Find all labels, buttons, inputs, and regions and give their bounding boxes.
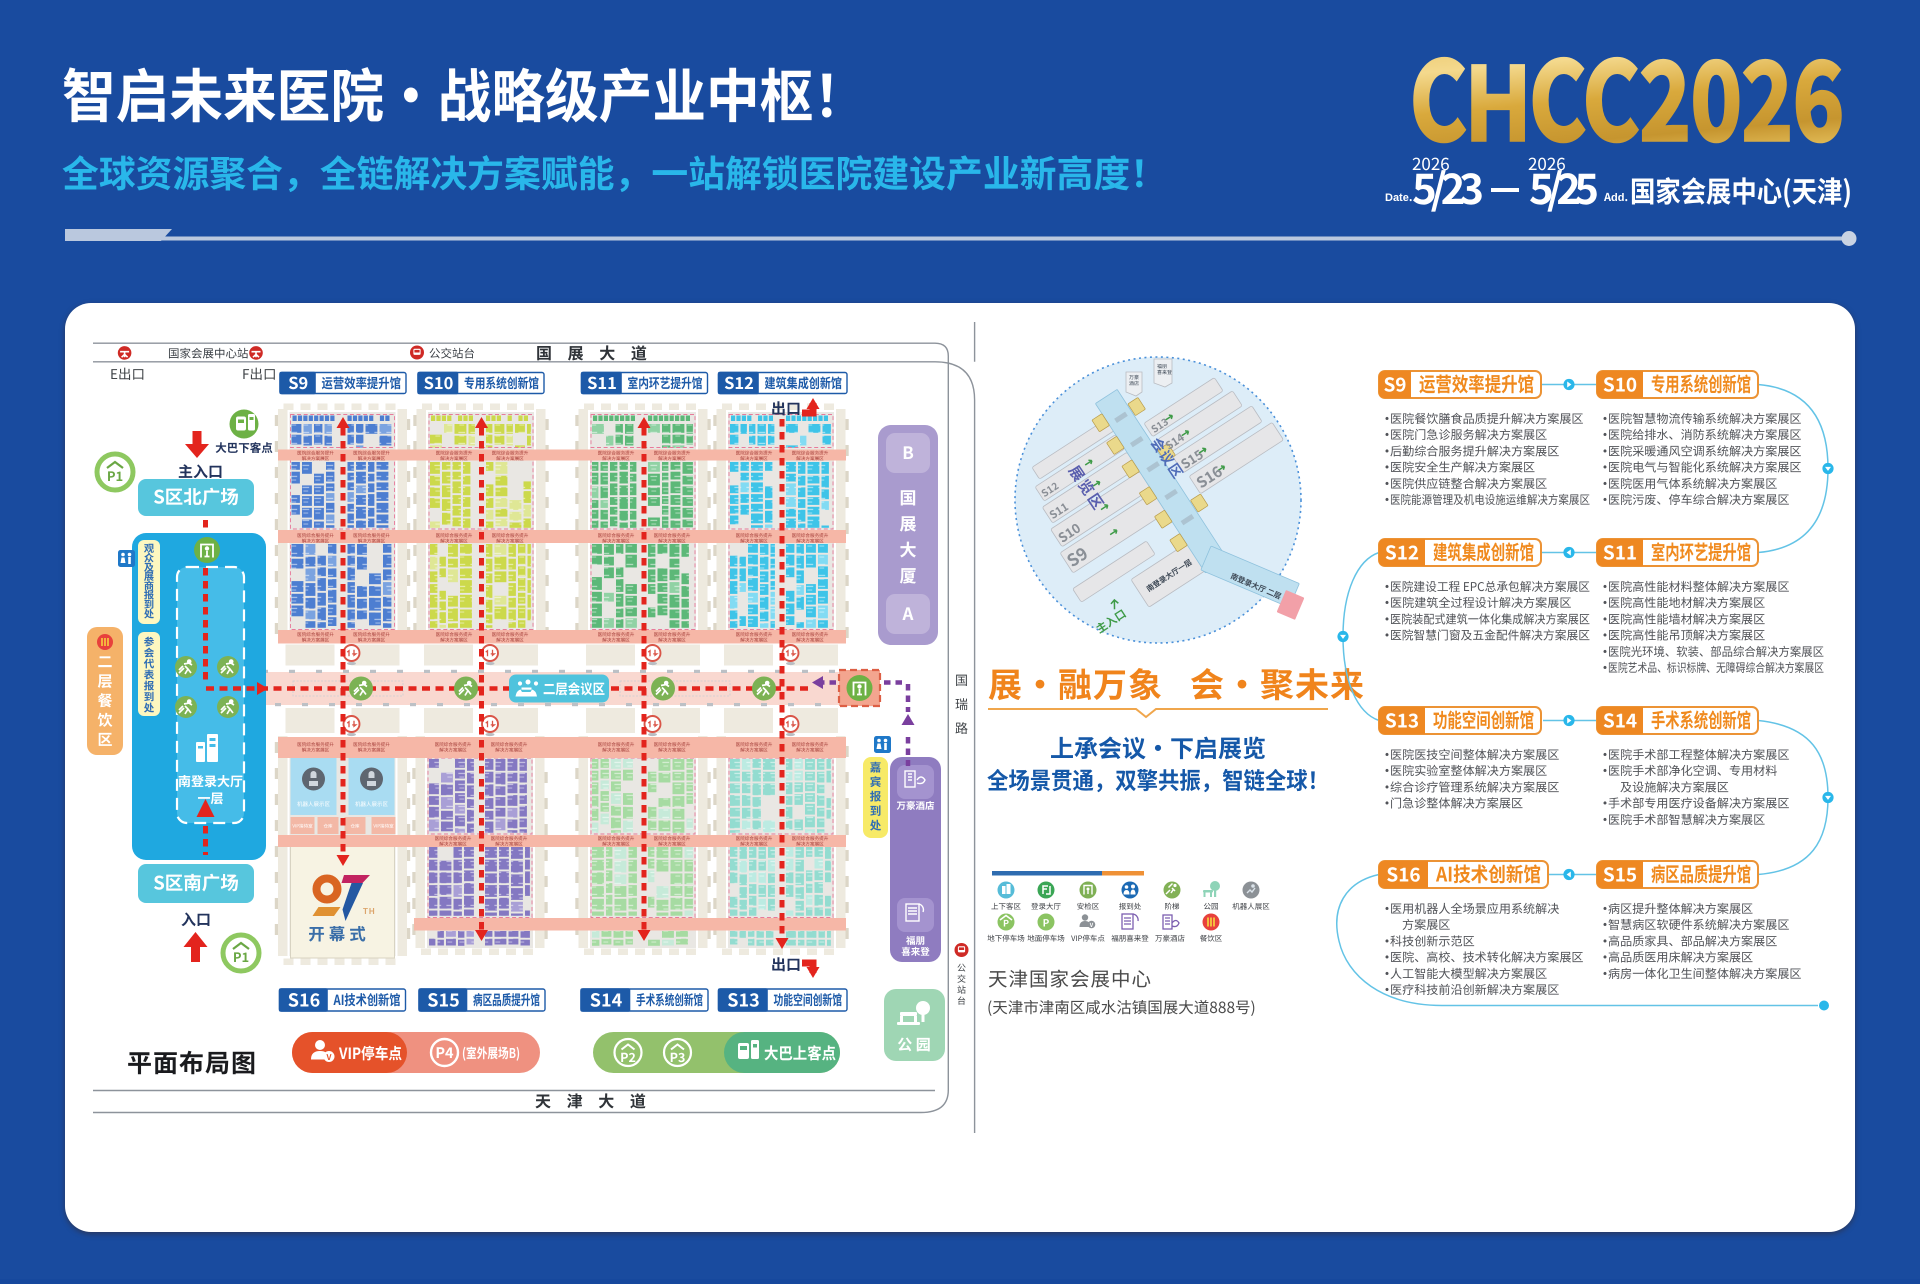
svg-text:建筑集成创新馆: 建筑集成创新馆 bbox=[1433, 537, 1534, 566]
svg-text:S15: S15 bbox=[427, 986, 459, 1012]
svg-text:医院智慧物流传输系统解决方案展区: 医院智慧物流传输系统解决方案展区 bbox=[1608, 410, 1802, 427]
svg-text:医院给排水、消防系统解决方案展区: 医院给排水、消防系统解决方案展区 bbox=[1608, 426, 1802, 443]
svg-text:解决方案展区: 解决方案展区 bbox=[796, 748, 824, 754]
svg-text:方案展区: 方案展区 bbox=[1402, 916, 1450, 933]
svg-text:公园: 公园 bbox=[1204, 901, 1219, 912]
svg-text:S16: S16 bbox=[288, 986, 320, 1012]
svg-text:VIP停车点: VIP停车点 bbox=[338, 1042, 402, 1064]
svg-text:解决方案展区: 解决方案展区 bbox=[358, 748, 386, 754]
svg-text:运营效率提升馆: 运营效率提升馆 bbox=[1419, 369, 1534, 398]
svg-text:平面布局图: 平面布局图 bbox=[127, 1044, 257, 1080]
svg-text:解决方案展区: 解决方案展区 bbox=[496, 456, 524, 462]
svg-text:P1: P1 bbox=[107, 466, 123, 485]
svg-text:5/25: 5/25 bbox=[1529, 156, 1599, 217]
svg-text:P: P bbox=[1003, 917, 1009, 930]
svg-text:S区南广场: S区南广场 bbox=[153, 870, 239, 896]
svg-text:智启未来医院·战略级产业中枢！: 智启未来医院·战略级产业中枢！ bbox=[62, 50, 867, 134]
svg-text:手术部专用医疗设备解决方案展区: 手术部专用医疗设备解决方案展区 bbox=[1608, 795, 1789, 812]
svg-text:S14: S14 bbox=[590, 986, 623, 1012]
svg-text:解决方案展区: 解决方案展区 bbox=[302, 539, 330, 545]
svg-text:出口: 出口 bbox=[771, 398, 801, 419]
svg-text:解决方案展区: 解决方案展区 bbox=[796, 539, 824, 545]
svg-text:智慧病区软硬件系统解决方案展区: 智慧病区软硬件系统解决方案展区 bbox=[1608, 916, 1789, 933]
svg-text:后勤综合服务提升解决方案展区: 后勤综合服务提升解决方案展区 bbox=[1390, 442, 1559, 459]
svg-text:大巴下客点: 大巴下客点 bbox=[215, 440, 273, 456]
svg-text:国: 国 bbox=[955, 670, 968, 689]
svg-text:开幕式: 开幕式 bbox=[308, 921, 370, 945]
svg-text:机器人展区: 机器人展区 bbox=[1232, 901, 1270, 912]
svg-text:P4: P4 bbox=[435, 1042, 454, 1063]
svg-text:医院高性能墙材解决方案展区: 医院高性能墙材解决方案展区 bbox=[1608, 610, 1765, 627]
svg-text:展·融万象: 展·融万象 bbox=[988, 658, 1163, 707]
svg-text:解决方案展区: 解决方案展区 bbox=[796, 842, 824, 848]
svg-text:VIP接待室: VIP接待室 bbox=[373, 824, 394, 830]
svg-text:一层: 一层 bbox=[197, 788, 223, 807]
svg-text:病区品质提升馆: 病区品质提升馆 bbox=[473, 990, 540, 1010]
svg-text:医院供应链整合解决方案展区: 医院供应链整合解决方案展区 bbox=[1390, 475, 1547, 492]
svg-text:天 津 大 道: 天 津 大 道 bbox=[535, 1088, 652, 1112]
svg-text:区: 区 bbox=[97, 729, 112, 750]
svg-text:瑞: 瑞 bbox=[955, 694, 968, 713]
svg-text:会·聚未来: 会·聚未来 bbox=[1190, 658, 1365, 707]
svg-text:全球资源聚合，全链解决方案赋能，一站解锁医院建设产业新高度！: 全球资源聚合，全链解决方案赋能，一站解锁医院建设产业新高度！ bbox=[62, 144, 1167, 198]
svg-text:医院装配式建筑一体化集成解决方案展区: 医院装配式建筑一体化集成解决方案展区 bbox=[1390, 610, 1590, 627]
svg-text:二: 二 bbox=[97, 651, 112, 672]
svg-text:VIP接待室: VIP接待室 bbox=[292, 824, 313, 830]
svg-text:解决方案展区: 解决方案展区 bbox=[602, 539, 630, 545]
svg-text:建筑集成创新馆: 建筑集成创新馆 bbox=[765, 372, 843, 392]
svg-text:登录大厅: 登录大厅 bbox=[1031, 901, 1061, 912]
svg-text:解决方案展区: 解决方案展区 bbox=[302, 638, 330, 644]
svg-text:医院能源管理及机电设施运维解决方案展区: 医院能源管理及机电设施运维解决方案展区 bbox=[1390, 491, 1590, 508]
svg-text:医用机器人全场景应用系统解决: 医用机器人全场景应用系统解决 bbox=[1390, 900, 1559, 917]
svg-text:大巴上客点: 大巴上客点 bbox=[764, 1040, 836, 1064]
svg-text:室内环艺提升馆: 室内环艺提升馆 bbox=[1651, 537, 1751, 566]
svg-text:解决方案展区: 解决方案展区 bbox=[440, 539, 468, 545]
svg-text:酒店: 酒店 bbox=[1129, 380, 1139, 387]
svg-text:医院艺术品、标识标牌、无障碍综合解决方案展区: 医院艺术品、标识标牌、无障碍综合解决方案展区 bbox=[1608, 659, 1824, 676]
svg-text:解决方案展区: 解决方案展区 bbox=[302, 748, 330, 754]
svg-text:饮: 饮 bbox=[97, 710, 112, 731]
svg-text:上下客区: 上下客区 bbox=[991, 901, 1021, 912]
svg-text:S10: S10 bbox=[1603, 371, 1637, 398]
svg-text:医院建设工程 EPC总承包解决方案展区: 医院建设工程 EPC总承包解决方案展区 bbox=[1390, 578, 1590, 595]
svg-text:解决方案展区: 解决方案展区 bbox=[740, 638, 768, 644]
svg-text:出口: 出口 bbox=[771, 954, 801, 975]
svg-text:VIP停车点: VIP停车点 bbox=[1071, 933, 1105, 944]
svg-text:解决方案展区: 解决方案展区 bbox=[602, 456, 630, 462]
svg-text:解决方案展区: 解决方案展区 bbox=[740, 456, 768, 462]
svg-text:二层会议区: 二层会议区 bbox=[543, 679, 605, 699]
svg-text:解决方案展区: 解决方案展区 bbox=[358, 539, 386, 545]
svg-text:上承会议·下启展览: 上承会议·下启展览 bbox=[1050, 729, 1266, 764]
svg-text:阶梯: 阶梯 bbox=[1165, 901, 1181, 912]
svg-text:医院电气与智能化系统解决方案展区: 医院电气与智能化系统解决方案展区 bbox=[1608, 459, 1802, 476]
svg-text:喜来登: 喜来登 bbox=[901, 944, 930, 958]
svg-text:解决方案展区: 解决方案展区 bbox=[440, 456, 468, 462]
svg-text:S12: S12 bbox=[1385, 539, 1419, 566]
svg-text:处: 处 bbox=[144, 605, 154, 620]
svg-text:S区北广场: S区北广场 bbox=[153, 484, 239, 510]
svg-text:S14: S14 bbox=[1603, 707, 1637, 734]
svg-text:科技创新示范区: 科技创新示范区 bbox=[1390, 932, 1475, 949]
svg-text:P3: P3 bbox=[670, 1047, 686, 1066]
svg-text:S11: S11 bbox=[587, 370, 617, 394]
svg-text:解决方案展区: 解决方案展区 bbox=[796, 456, 824, 462]
svg-text:万豪酒店: 万豪酒店 bbox=[896, 798, 935, 812]
svg-text:E出口: E出口 bbox=[110, 363, 145, 383]
svg-text:解决方案展区: 解决方案展区 bbox=[740, 748, 768, 754]
svg-text:医院医技空间整体解决方案展区: 医院医技空间整体解决方案展区 bbox=[1390, 746, 1559, 763]
svg-text:医院医用气体系统解决方案展区: 医院医用气体系统解决方案展区 bbox=[1608, 475, 1777, 492]
svg-text:S13: S13 bbox=[1385, 707, 1419, 734]
svg-text:公 园: 公 园 bbox=[897, 1034, 930, 1055]
svg-text:S13: S13 bbox=[727, 986, 759, 1012]
svg-text:医院手术部工程整体解决方案展区: 医院手术部工程整体解决方案展区 bbox=[1608, 746, 1789, 763]
svg-text:台: 台 bbox=[957, 994, 966, 1007]
svg-text:机器人展示区: 机器人展示区 bbox=[355, 800, 389, 808]
svg-text:解决方案展区: 解决方案展区 bbox=[658, 638, 686, 644]
svg-text:医院建筑全过程设计解决方案展区: 医院建筑全过程设计解决方案展区 bbox=[1390, 594, 1571, 611]
svg-text:P2: P2 bbox=[620, 1047, 636, 1066]
svg-text:功能空间创新馆: 功能空间创新馆 bbox=[774, 990, 843, 1010]
svg-text:V: V bbox=[1089, 921, 1094, 929]
svg-text:医院污废、停车综合解决方案展区: 医院污废、停车综合解决方案展区 bbox=[1608, 491, 1789, 508]
svg-text:国: 国 bbox=[900, 484, 917, 509]
svg-text:5/23: 5/23 bbox=[1412, 156, 1484, 217]
svg-text:F出口: F出口 bbox=[242, 363, 276, 383]
svg-text:解决方案展区: 解决方案展区 bbox=[358, 638, 386, 644]
svg-text:(天津市津南区咸水沽镇国展大道888号): (天津市津南区咸水沽镇国展大道888号) bbox=[987, 996, 1256, 1018]
svg-text:综合诊疗管理系统解决方案展区: 综合诊疗管理系统解决方案展区 bbox=[1390, 778, 1559, 795]
svg-text:专用系统创新馆: 专用系统创新馆 bbox=[1651, 369, 1751, 398]
svg-text:P1: P1 bbox=[233, 947, 249, 966]
svg-text:展: 展 bbox=[900, 510, 917, 535]
svg-text:及设施解决方案展区: 及设施解决方案展区 bbox=[1620, 778, 1729, 795]
svg-text:医院手术部净化空调、专用材料: 医院手术部净化空调、专用材料 bbox=[1608, 762, 1777, 779]
svg-text:解决方案展区: 解决方案展区 bbox=[496, 638, 524, 644]
svg-text:S16: S16 bbox=[1386, 861, 1420, 888]
svg-text:手术系统创新馆: 手术系统创新馆 bbox=[636, 990, 703, 1010]
svg-text:S11: S11 bbox=[1603, 539, 1637, 566]
svg-text:解决方案展区: 解决方案展区 bbox=[358, 456, 386, 462]
svg-text:高品质医用床解决方案展区: 高品质医用床解决方案展区 bbox=[1608, 949, 1753, 966]
svg-text:Add.: Add. bbox=[1603, 189, 1628, 205]
svg-text:解决方案展区: 解决方案展区 bbox=[740, 539, 768, 545]
svg-text:Date.: Date. bbox=[1385, 189, 1412, 205]
svg-text:病区提升整体解决方案展区: 病区提升整体解决方案展区 bbox=[1608, 900, 1753, 917]
svg-text:喜来登: 喜来登 bbox=[1157, 369, 1172, 376]
svg-text:P: P bbox=[1043, 915, 1050, 930]
svg-text:全场景贯通，双擎共振，智链全球！: 全场景贯通，双擎共振，智链全球！ bbox=[987, 762, 1329, 796]
svg-text:CHCC2026: CHCC2026 bbox=[1410, 16, 1844, 172]
svg-text:医院智慧门窗及五金配件解决方案展区: 医院智慧门窗及五金配件解决方案展区 bbox=[1390, 627, 1590, 644]
svg-text:餐: 餐 bbox=[97, 690, 112, 711]
svg-text:国 展 大 道: 国 展 大 道 bbox=[536, 340, 653, 364]
svg-text:层: 层 bbox=[97, 671, 112, 692]
svg-text:S12: S12 bbox=[724, 370, 754, 394]
svg-text:地下停车场: 地下停车场 bbox=[987, 933, 1025, 944]
svg-text:医院安全生产解决方案展区: 医院安全生产解决方案展区 bbox=[1390, 459, 1535, 476]
svg-text:国家会展中心站: 国家会展中心站 bbox=[168, 346, 249, 362]
svg-text:病区品质提升馆: 病区品质提升馆 bbox=[1651, 859, 1751, 888]
svg-text:解决方案展区: 解决方案展区 bbox=[658, 456, 686, 462]
svg-text:处: 处 bbox=[144, 701, 155, 716]
svg-text:AI技术创新馆: AI技术创新馆 bbox=[333, 990, 401, 1010]
svg-text:解决方案展区: 解决方案展区 bbox=[439, 748, 467, 754]
svg-text:S9: S9 bbox=[288, 370, 308, 394]
svg-text:解决方案展区: 解决方案展区 bbox=[496, 539, 524, 545]
svg-text:福朋喜来登: 福朋喜来登 bbox=[1111, 933, 1149, 944]
svg-text:医疗科技前沿创新解决方案展区: 医疗科技前沿创新解决方案展区 bbox=[1390, 981, 1559, 998]
svg-text:解决方案展区: 解决方案展区 bbox=[658, 842, 686, 848]
svg-text:解决方案展区: 解决方案展区 bbox=[658, 539, 686, 545]
svg-text:S15: S15 bbox=[1603, 861, 1637, 888]
svg-text:国家会展中心(天津): 国家会展中心(天津) bbox=[1630, 169, 1852, 211]
svg-text:医院采暖通风空调系统解决方案展区: 医院采暖通风空调系统解决方案展区 bbox=[1608, 442, 1802, 459]
svg-text:入口: 入口 bbox=[181, 909, 211, 930]
svg-text:报到处: 报到处 bbox=[1119, 901, 1142, 912]
svg-text:医院门急诊服务解决方案展区: 医院门急诊服务解决方案展区 bbox=[1390, 426, 1547, 443]
svg-text:厦: 厦 bbox=[900, 562, 917, 587]
svg-text:解决方案展区: 解决方案展区 bbox=[302, 456, 330, 462]
svg-text:高品质家具、部品解决方案展区: 高品质家具、部品解决方案展区 bbox=[1608, 932, 1777, 949]
svg-text:门急诊整体解决方案展区: 门急诊整体解决方案展区 bbox=[1390, 795, 1523, 812]
svg-text:医院手术部智慧解决方案展区: 医院手术部智慧解决方案展区 bbox=[1608, 811, 1765, 828]
svg-text:机器人展示区: 机器人展示区 bbox=[297, 800, 331, 808]
svg-text:医院实验室整体解决方案展区: 医院实验室整体解决方案展区 bbox=[1390, 762, 1547, 779]
svg-text:餐饮区: 餐饮区 bbox=[1200, 933, 1223, 944]
svg-text:S10: S10 bbox=[424, 370, 454, 394]
svg-text:人工智能大模型解决方案展区: 人工智能大模型解决方案展区 bbox=[1390, 965, 1547, 982]
svg-text:天津国家会展中心: 天津国家会展中心 bbox=[988, 963, 1152, 992]
svg-text:解决方案展区: 解决方案展区 bbox=[740, 842, 768, 848]
svg-text:仓库: 仓库 bbox=[351, 824, 360, 830]
svg-text:解决方案展区: 解决方案展区 bbox=[439, 842, 467, 848]
svg-text:S9: S9 bbox=[1383, 371, 1406, 398]
svg-text:运营效率提升馆: 运营效率提升馆 bbox=[322, 372, 402, 392]
svg-text:仓库: 仓库 bbox=[324, 824, 333, 830]
svg-text:解决方案展区: 解决方案展区 bbox=[658, 748, 686, 754]
svg-text:医院、高校、技术转化解决方案展区: 医院、高校、技术转化解决方案展区 bbox=[1390, 949, 1584, 966]
svg-text:安检区: 安检区 bbox=[1077, 901, 1100, 912]
svg-text:解决方案展区: 解决方案展区 bbox=[602, 842, 630, 848]
svg-text:TH: TH bbox=[363, 906, 376, 917]
svg-text:解决方案展区: 解决方案展区 bbox=[602, 748, 630, 754]
svg-text:解决方案展区: 解决方案展区 bbox=[495, 842, 523, 848]
svg-text:解决方案展区: 解决方案展区 bbox=[495, 748, 523, 754]
svg-text:解决方案展区: 解决方案展区 bbox=[796, 638, 824, 644]
svg-text:A: A bbox=[902, 600, 914, 625]
svg-text:B: B bbox=[902, 439, 914, 464]
svg-text:V: V bbox=[326, 1052, 332, 1063]
svg-text:医院餐饮膳食品质提升解决方案展区: 医院餐饮膳食品质提升解决方案展区 bbox=[1390, 410, 1584, 427]
svg-text:手术系统创新馆: 手术系统创新馆 bbox=[1651, 705, 1751, 734]
svg-text:解决方案展区: 解决方案展区 bbox=[602, 638, 630, 644]
svg-text:公交站台: 公交站台 bbox=[429, 346, 475, 362]
svg-text:万豪酒店: 万豪酒店 bbox=[1155, 933, 1185, 944]
svg-text:(室外展场B): (室外展场B) bbox=[462, 1042, 520, 1062]
svg-text:路: 路 bbox=[955, 718, 968, 737]
svg-text:大: 大 bbox=[900, 536, 917, 561]
svg-text:处: 处 bbox=[870, 818, 882, 834]
svg-text:医院高性能地材解决方案展区: 医院高性能地材解决方案展区 bbox=[1608, 594, 1765, 611]
svg-text:解决方案展区: 解决方案展区 bbox=[440, 638, 468, 644]
svg-text:医院光环境、软装、部品综合解决方案展区: 医院光环境、软装、部品综合解决方案展区 bbox=[1608, 643, 1824, 660]
svg-text:专用系统创新馆: 专用系统创新馆 bbox=[464, 372, 539, 392]
svg-text:主入口: 主入口 bbox=[178, 461, 223, 482]
svg-text:医院高性能材料整体解决方案展区: 医院高性能材料整体解决方案展区 bbox=[1608, 578, 1789, 595]
svg-text:病房一体化卫生间整体解决方案展区: 病房一体化卫生间整体解决方案展区 bbox=[1608, 965, 1802, 982]
svg-text:室内环艺提升馆: 室内环艺提升馆 bbox=[628, 372, 703, 392]
svg-text:医院高性能吊顶解决方案展区: 医院高性能吊顶解决方案展区 bbox=[1608, 627, 1765, 644]
svg-text:功能空间创新馆: 功能空间创新馆 bbox=[1433, 705, 1534, 734]
svg-text:地面停车场: 地面停车场 bbox=[1027, 933, 1065, 944]
svg-text:AI技术创新馆: AI技术创新馆 bbox=[1435, 859, 1541, 888]
